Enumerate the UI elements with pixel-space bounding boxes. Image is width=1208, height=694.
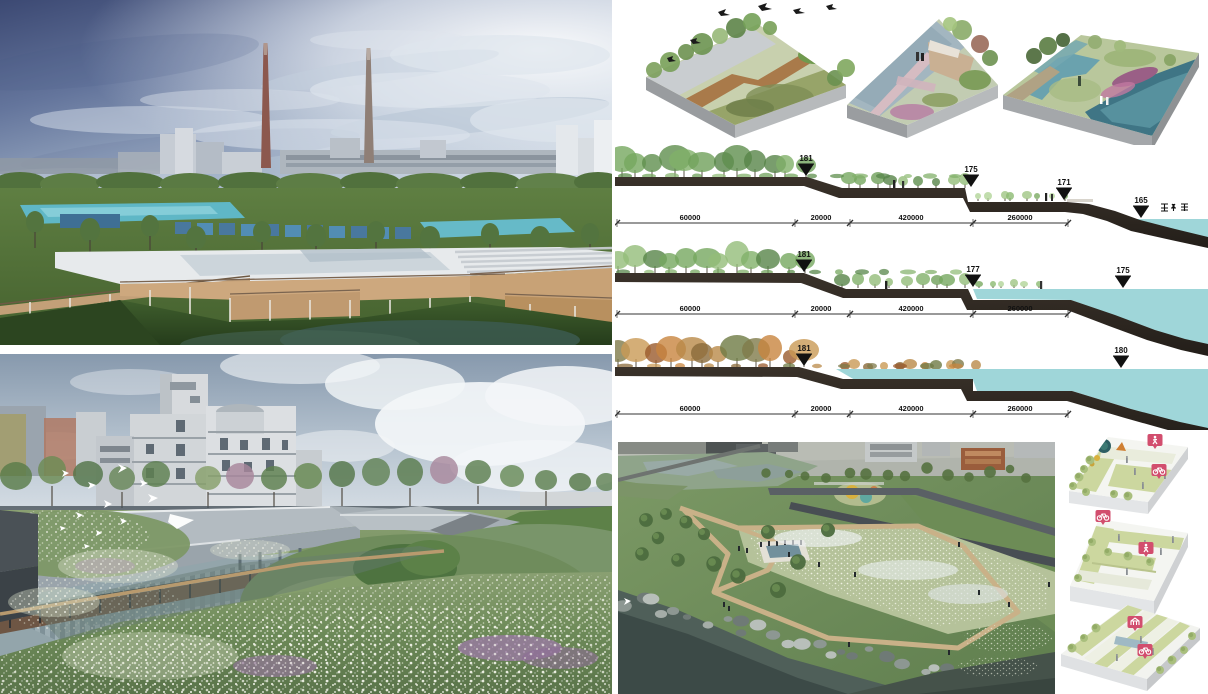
svg-text:181: 181 [799,154,813,163]
svg-text:60000: 60000 [680,213,701,222]
svg-text:177: 177 [966,265,980,274]
svg-text:260000: 260000 [1007,213,1032,222]
svg-text:260000: 260000 [1007,304,1032,313]
svg-text:165: 165 [1134,196,1148,205]
svg-text:420000: 420000 [898,404,923,413]
svg-text:181: 181 [797,344,811,353]
svg-text:175: 175 [964,165,978,174]
svg-text:260000: 260000 [1007,404,1032,413]
svg-text:420000: 420000 [898,304,923,313]
svg-text:60000: 60000 [680,404,701,413]
svg-text:20000: 20000 [811,404,832,413]
svg-text:20000: 20000 [811,213,832,222]
svg-text:180: 180 [1114,346,1128,355]
svg-text:420000: 420000 [898,213,923,222]
svg-text:171: 171 [1057,178,1071,187]
svg-text:181: 181 [797,250,811,259]
svg-text:175: 175 [1116,266,1130,275]
svg-text:60000: 60000 [680,304,701,313]
svg-text:20000: 20000 [811,304,832,313]
